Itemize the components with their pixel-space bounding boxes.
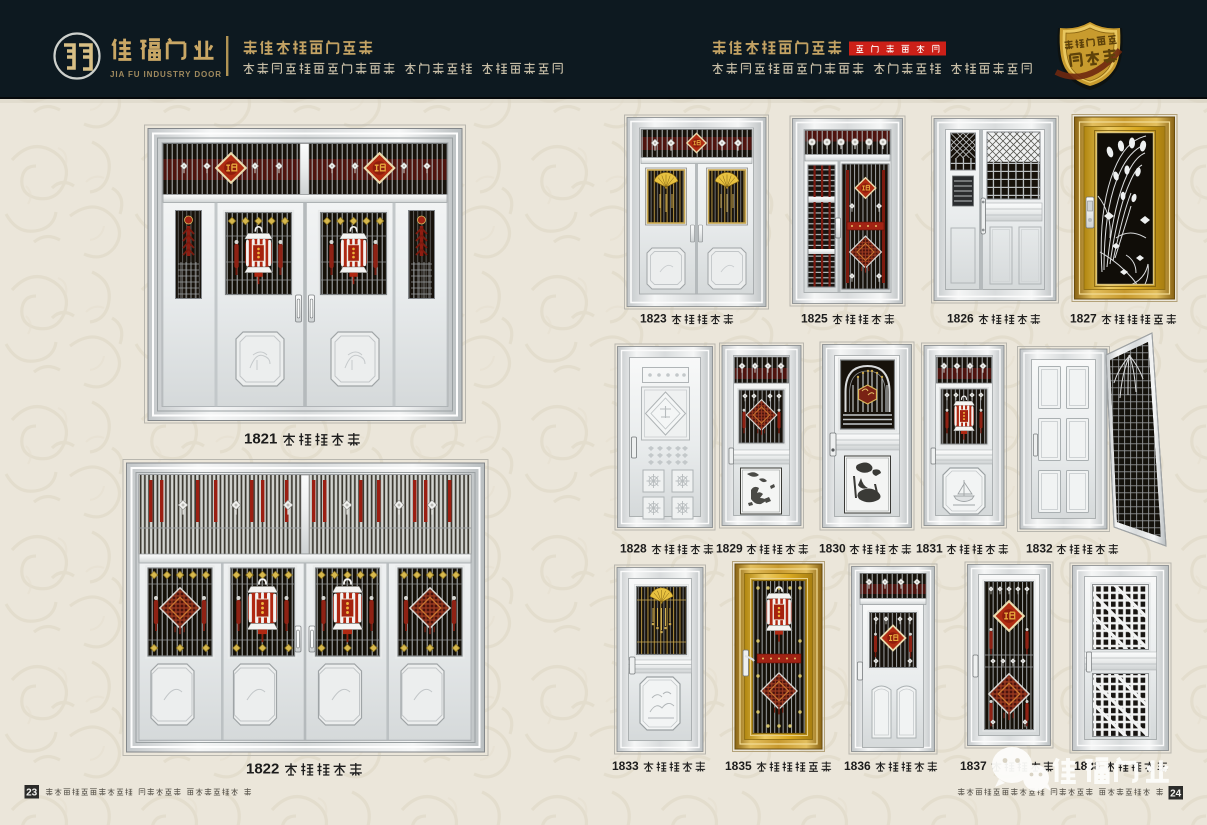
svg-text:1826: 1826: [947, 312, 974, 326]
svg-text:1837: 1837: [960, 759, 987, 773]
svg-text:1822: 1822: [246, 761, 279, 778]
svg-text:1833: 1833: [612, 759, 639, 773]
svg-text:1828: 1828: [620, 542, 647, 556]
svg-text:1829: 1829: [716, 542, 743, 556]
svg-text:1827: 1827: [1070, 312, 1097, 326]
svg-text:23: 23: [26, 788, 38, 799]
svg-text:1836: 1836: [844, 759, 871, 773]
svg-text:1831: 1831: [916, 542, 943, 556]
svg-text:1830: 1830: [819, 542, 846, 556]
svg-text:1825: 1825: [801, 312, 828, 326]
svg-text:24: 24: [1170, 789, 1182, 800]
svg-text:1821: 1821: [244, 431, 277, 448]
svg-text:1835: 1835: [725, 759, 752, 773]
svg-text:1823: 1823: [640, 312, 667, 326]
svg-text:1832: 1832: [1026, 542, 1053, 556]
